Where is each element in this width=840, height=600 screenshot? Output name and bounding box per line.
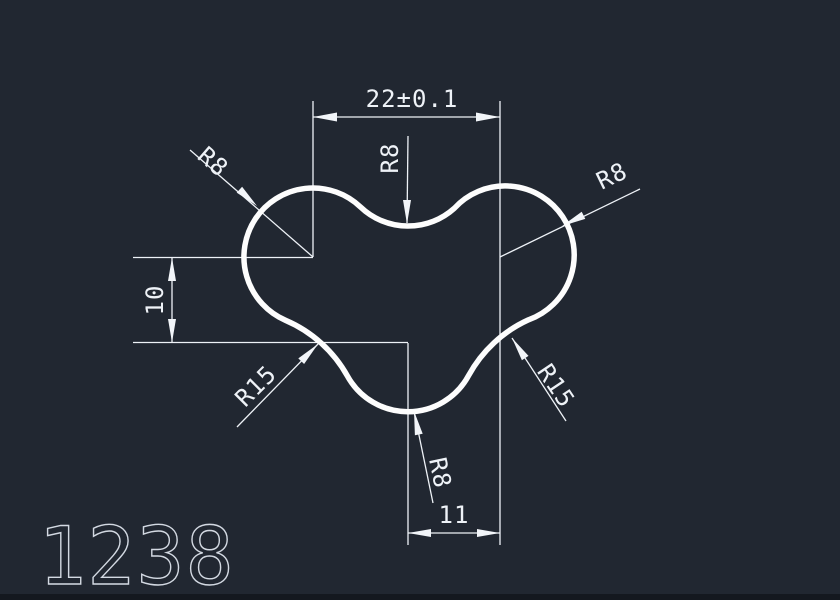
- cad-drawing-canvas[interactable]: 22±0.1 R8 R8 R8 10 R15 R15 R8 11 1238: [0, 0, 840, 600]
- dim-bottom-width-label: 11: [439, 501, 470, 529]
- dim-top-width-label: 22±0.1: [366, 85, 459, 113]
- radius-label-top-center: R8: [376, 143, 404, 174]
- dim-left-height-label: 10: [141, 285, 169, 316]
- part-number-text: 1238: [38, 510, 235, 600]
- cad-viewport[interactable]: 22±0.1 R8 R8 R8 10 R15 R15 R8 11 1238: [0, 0, 840, 600]
